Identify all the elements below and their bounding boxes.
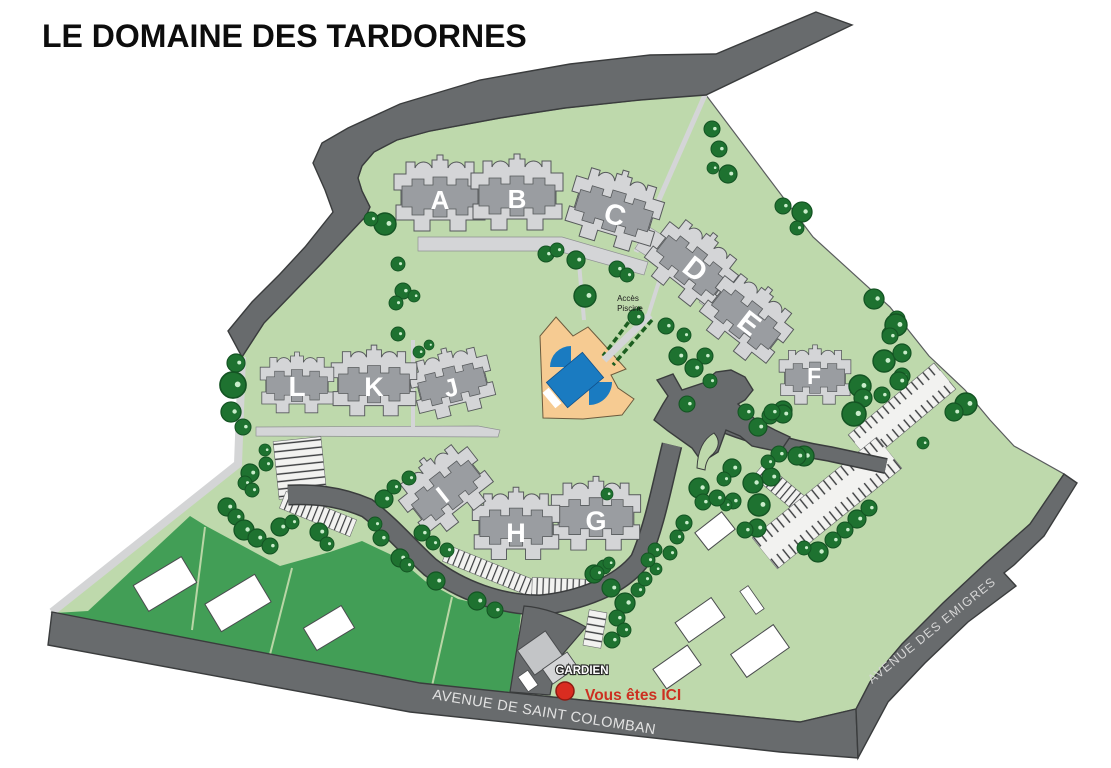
svg-text:LE DOMAINE DES TARDORNES: LE DOMAINE DES TARDORNES	[42, 18, 527, 54]
svg-text:GARDIEN: GARDIEN	[555, 665, 608, 677]
svg-text:F: F	[807, 363, 821, 389]
svg-text:B: B	[508, 184, 527, 214]
svg-text:A: A	[431, 185, 450, 215]
svg-text:G: G	[585, 506, 606, 536]
svg-text:L: L	[288, 371, 305, 402]
svg-text:Piscine: Piscine	[617, 304, 643, 313]
svg-text:Accès: Accès	[617, 294, 639, 303]
svg-text:K: K	[364, 372, 384, 402]
svg-text:Vous êtes ICI: Vous êtes ICI	[585, 687, 681, 704]
svg-text:H: H	[506, 518, 526, 548]
